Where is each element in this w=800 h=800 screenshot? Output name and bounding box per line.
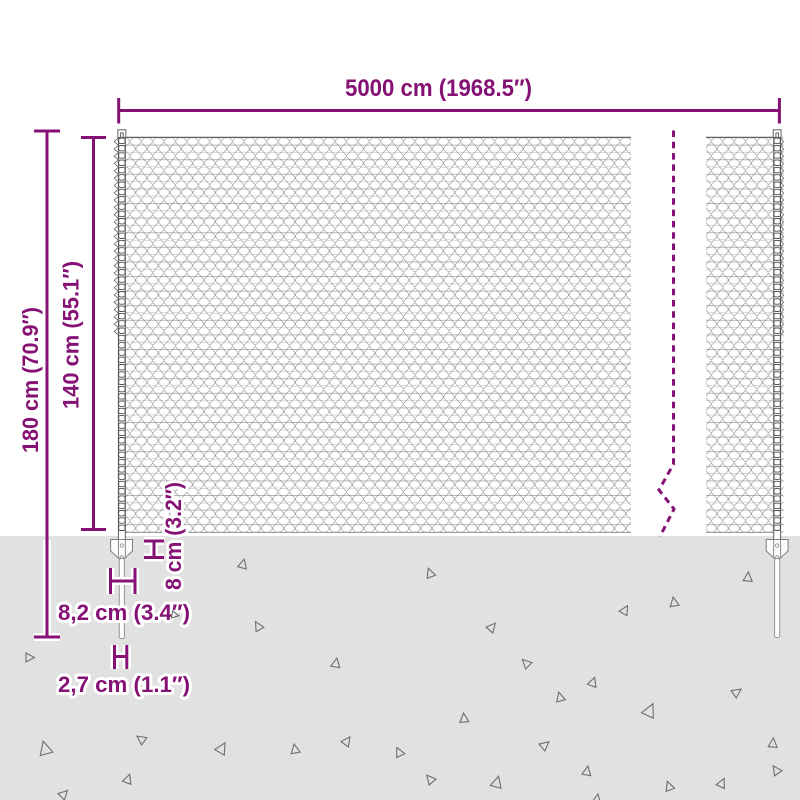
svg-text:2,7 cm (1.1″): 2,7 cm (1.1″) [58,672,190,697]
svg-text:140 cm (55.1″): 140 cm (55.1″) [59,261,84,409]
svg-text:8,2 cm (3.4″): 8,2 cm (3.4″) [58,600,190,625]
svg-text:5000 cm (1968.5″): 5000 cm (1968.5″) [345,75,532,102]
svg-text:180 cm (70.9″): 180 cm (70.9″) [18,307,43,453]
svg-text:8 cm (3.2″): 8 cm (3.2″) [161,482,186,590]
